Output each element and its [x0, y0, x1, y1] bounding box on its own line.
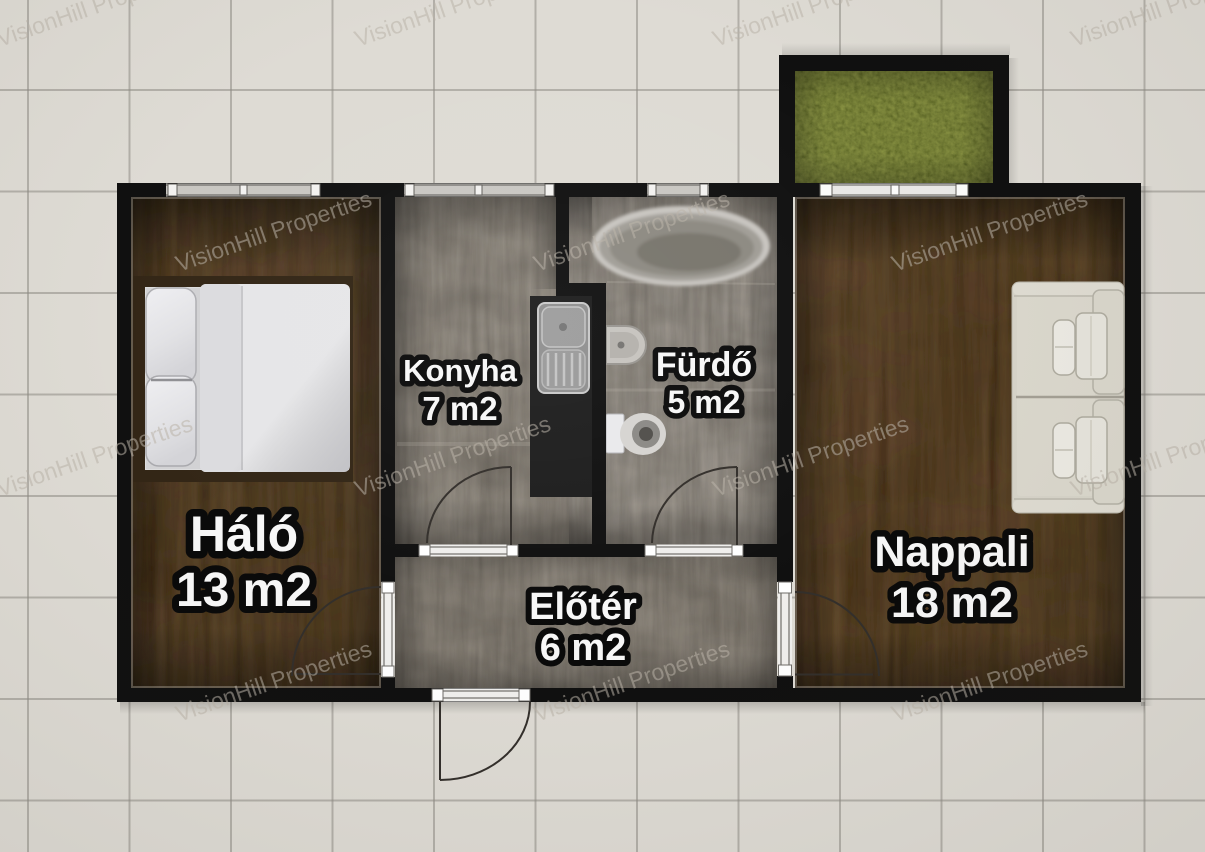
svg-text:6 m2: 6 m2: [540, 627, 627, 669]
svg-text:Fürdő: Fürdő: [656, 346, 752, 384]
svg-text:7 m2: 7 m2: [422, 390, 497, 427]
svg-text:Konyha: Konyha: [403, 353, 517, 388]
svg-text:18 m2: 18 m2: [891, 579, 1013, 627]
svg-text:Nappali: Nappali: [874, 528, 1029, 576]
svg-text:Háló: Háló: [190, 506, 298, 562]
svg-text:Előtér: Előtér: [529, 586, 637, 628]
svg-text:13 m2: 13 m2: [176, 564, 312, 617]
svg-text:5 m2: 5 m2: [668, 384, 741, 420]
